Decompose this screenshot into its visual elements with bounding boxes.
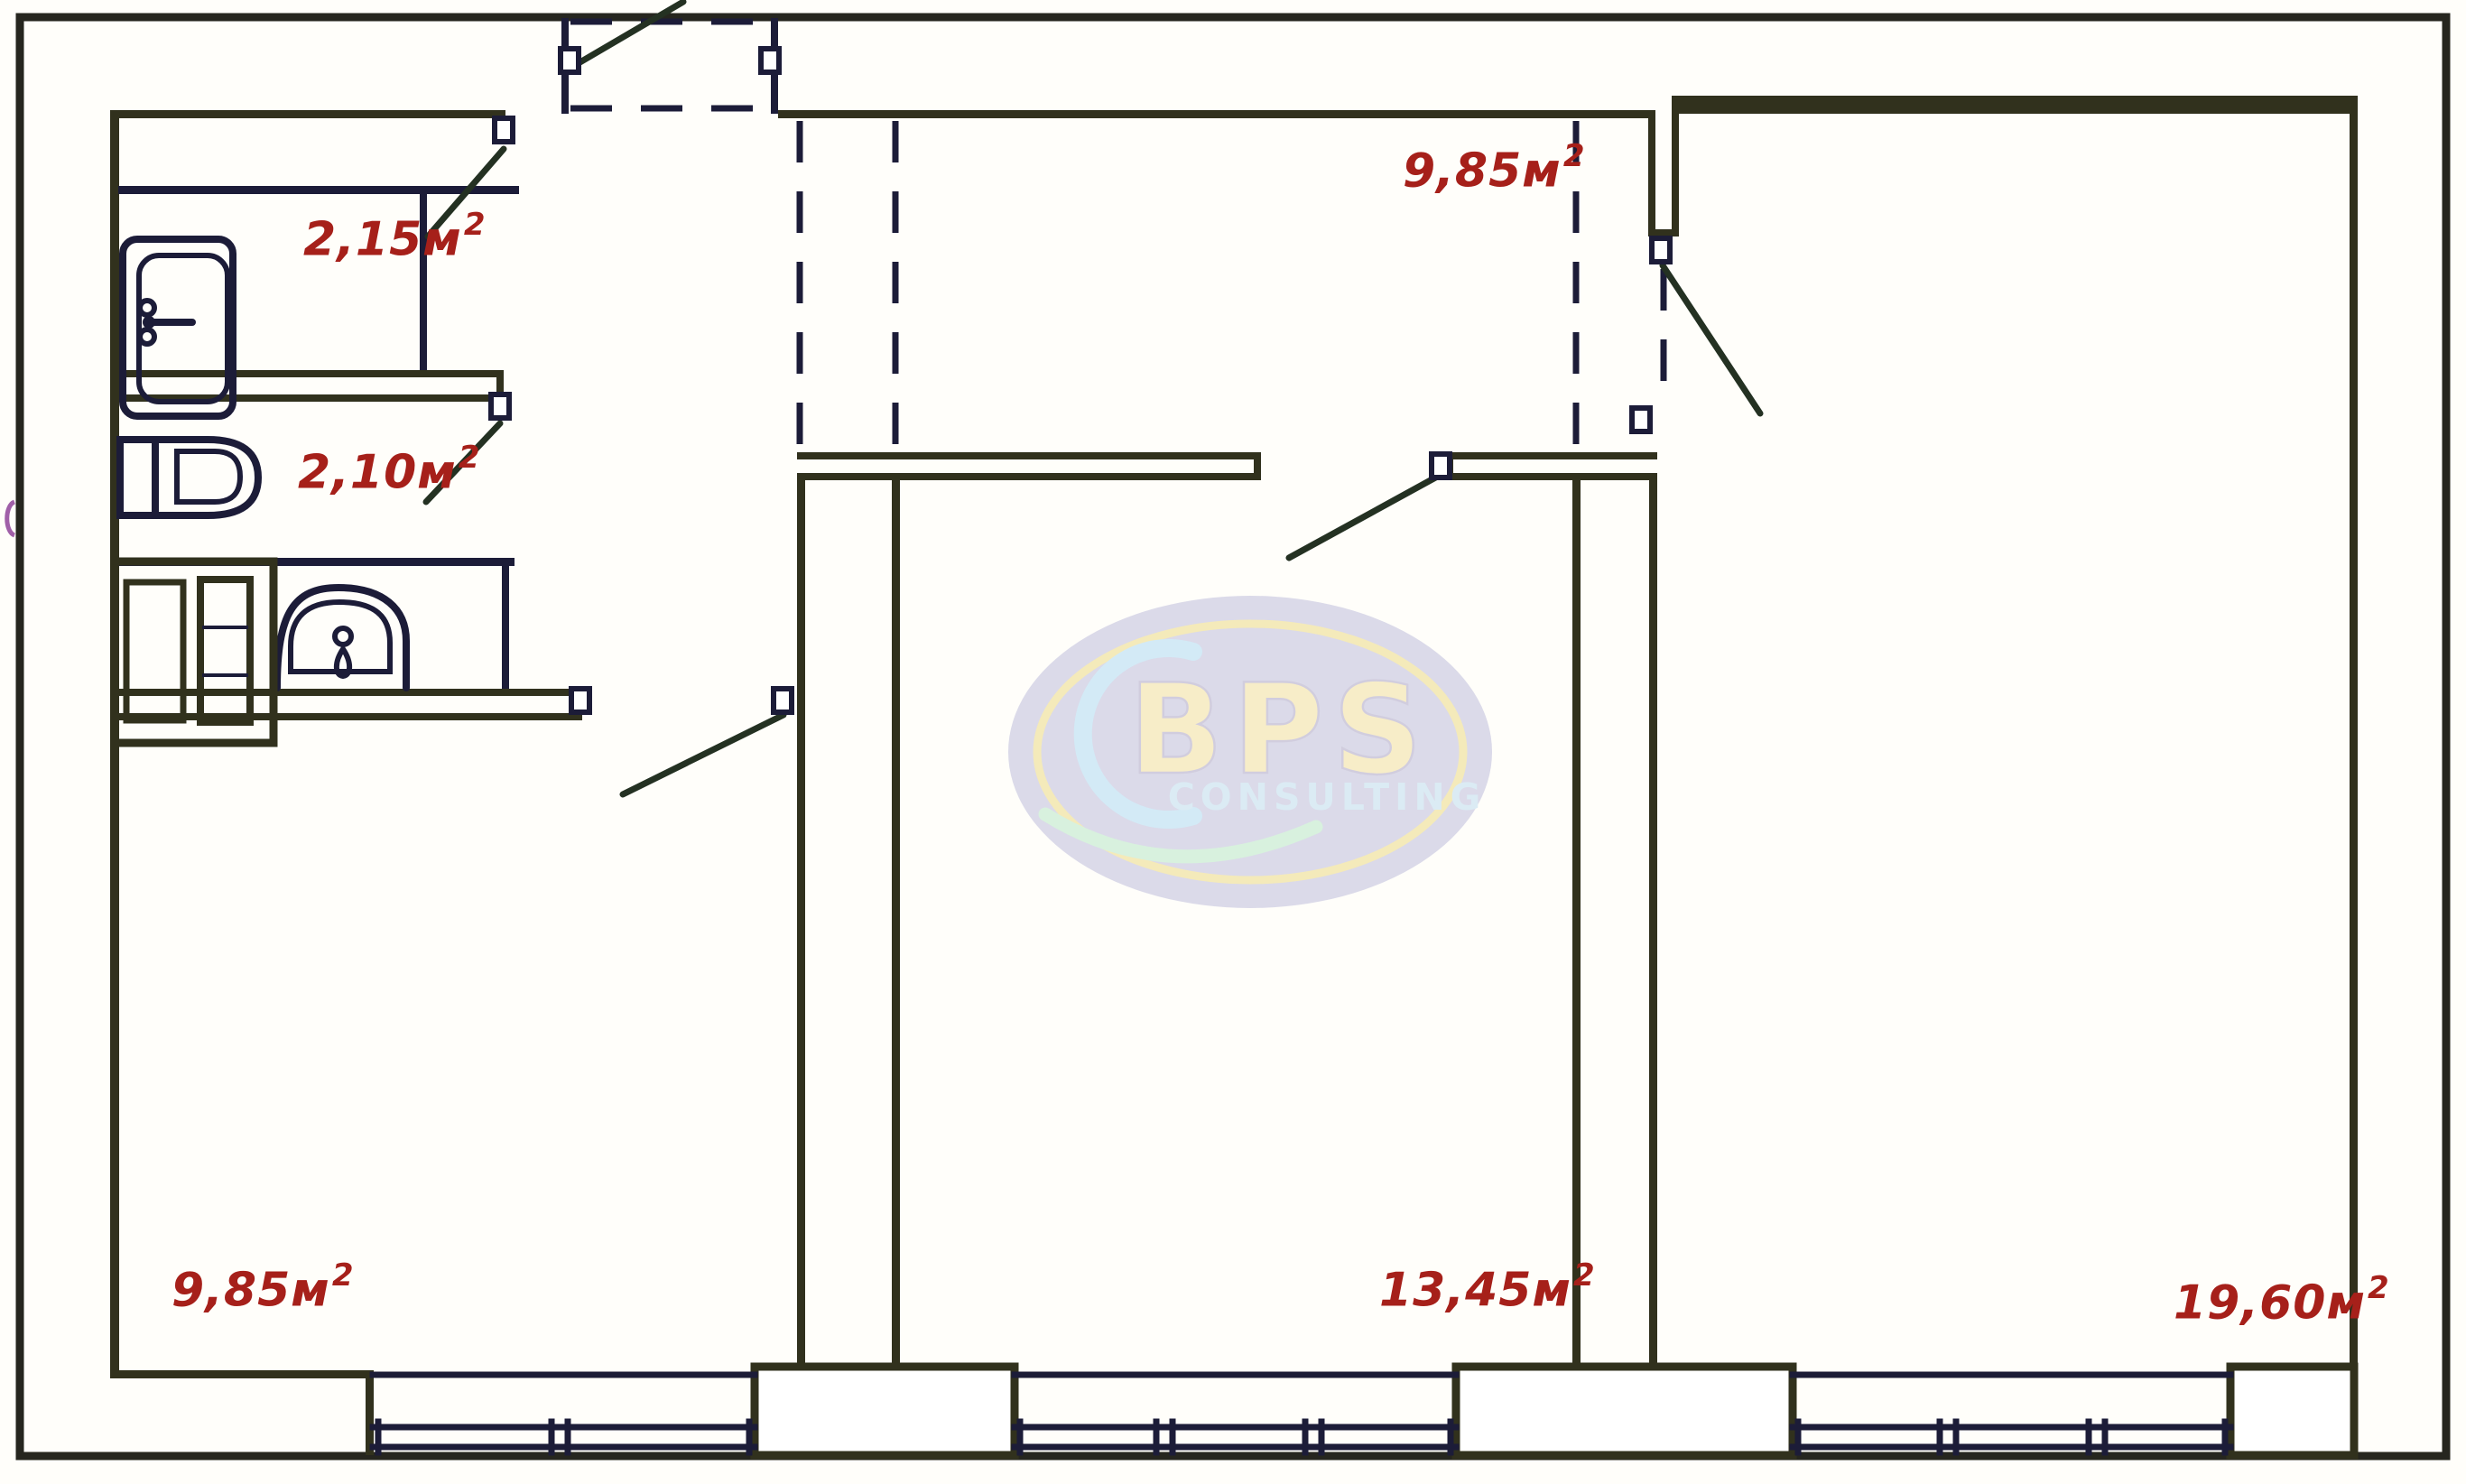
left-column-edge-a <box>797 480 805 1367</box>
area-label-bath-sup: 2 <box>464 207 487 243</box>
top-wall-inner-right <box>778 110 1655 118</box>
area-label-room-middle-text: 13,45м <box>1379 1263 1571 1317</box>
hinge-wc-door <box>491 394 509 418</box>
hinge-bath-door <box>495 118 513 142</box>
bath-top-wall <box>118 186 519 194</box>
watermark-subtitle-text: CONSULTING <box>1168 775 1487 819</box>
left-wall-mark <box>7 502 14 535</box>
right-room-side-wall <box>2350 96 2358 1459</box>
pier-left <box>755 1367 1015 1455</box>
mid-wall-right-b <box>1446 473 1657 480</box>
left-column-edge-b <box>892 480 900 1367</box>
hinge-right-room-door-bottom <box>1632 408 1650 431</box>
area-label-room-right-sup: 2 <box>2368 1270 2390 1306</box>
mid-wall-left-cap <box>1254 452 1261 480</box>
bps-consulting-watermark: BPS CONSULTING <box>1008 596 1492 908</box>
area-label-bath-text: 2,15м <box>303 212 462 266</box>
washroom-side-wall <box>502 566 509 689</box>
entrance-door-swing <box>572 2 683 67</box>
bottom-wall-left-cap <box>366 1370 374 1455</box>
middle-room-door-swing <box>1289 476 1439 558</box>
left-wall-inner <box>110 118 119 1378</box>
bottom-wall-inner-left <box>119 1370 373 1378</box>
hinge-entrance-right <box>761 49 779 72</box>
right-column-edge-a <box>1572 480 1581 1367</box>
area-label-wc-text: 2,10м <box>298 445 457 499</box>
bottom-wall-piers <box>755 1367 2354 1455</box>
right-room-door-stub-b <box>1672 114 1679 237</box>
area-label-room-left-sup: 2 <box>332 1257 355 1294</box>
area-label-wc: 2,10м2 <box>298 446 478 496</box>
mid-wall-left-a <box>797 452 1261 459</box>
pier-middle <box>1456 1367 1793 1455</box>
hinge-entrance-left <box>561 49 579 72</box>
area-label-room-left-text: 9,85м <box>172 1263 330 1317</box>
area-label-room-right-text: 19,60м <box>2174 1275 2366 1330</box>
mid-wall-right-a <box>1446 452 1657 459</box>
area-label-wc-sup: 2 <box>459 440 481 476</box>
windows <box>373 1375 2230 1452</box>
bathtub-faucet-icon <box>140 301 192 344</box>
hinge-right-room-door-top <box>1652 238 1670 262</box>
right-room-door-swing <box>1663 265 1760 413</box>
window-right-room <box>1793 1375 2230 1452</box>
bath-wc-wall-a <box>118 370 504 377</box>
right-room-door-stub-cap <box>1648 229 1679 237</box>
pier-right <box>2230 1367 2354 1455</box>
area-label-room-right: 19,60м2 <box>2174 1276 2388 1326</box>
dashed-lines <box>570 22 1664 450</box>
hinge-hall-door-right <box>774 689 792 712</box>
hinge-middle-room-door <box>1432 454 1450 478</box>
mid-wall-left-b <box>797 473 1261 480</box>
right-room-door-stub-a <box>1648 114 1655 237</box>
area-label-hall-top: 9,85м2 <box>1403 144 1583 194</box>
bathtub <box>123 239 233 416</box>
top-wall-inner-left <box>110 110 505 118</box>
washbasin <box>277 588 406 688</box>
area-label-room-middle-sup: 2 <box>1573 1257 1596 1294</box>
right-column-edge-b <box>1649 480 1657 1367</box>
area-label-room-middle: 13,45м2 <box>1379 1264 1594 1313</box>
sanitary-block-walls <box>118 18 778 689</box>
area-label-bath: 2,15м2 <box>303 213 484 263</box>
window-middle-room <box>1015 1375 1456 1452</box>
right-room-top-wall <box>1672 96 2358 114</box>
floor-plan: BPS CONSULTING <box>0 0 2466 1484</box>
toilet <box>120 440 258 515</box>
area-label-room-left: 9,85м2 <box>172 1264 352 1313</box>
window-left-room <box>373 1375 755 1452</box>
hall-door-swing <box>623 715 783 794</box>
hinge-hall-door-left <box>571 689 589 712</box>
area-label-hall-top-text: 9,85м <box>1403 144 1562 198</box>
area-label-hall-top-sup: 2 <box>1563 138 1586 174</box>
